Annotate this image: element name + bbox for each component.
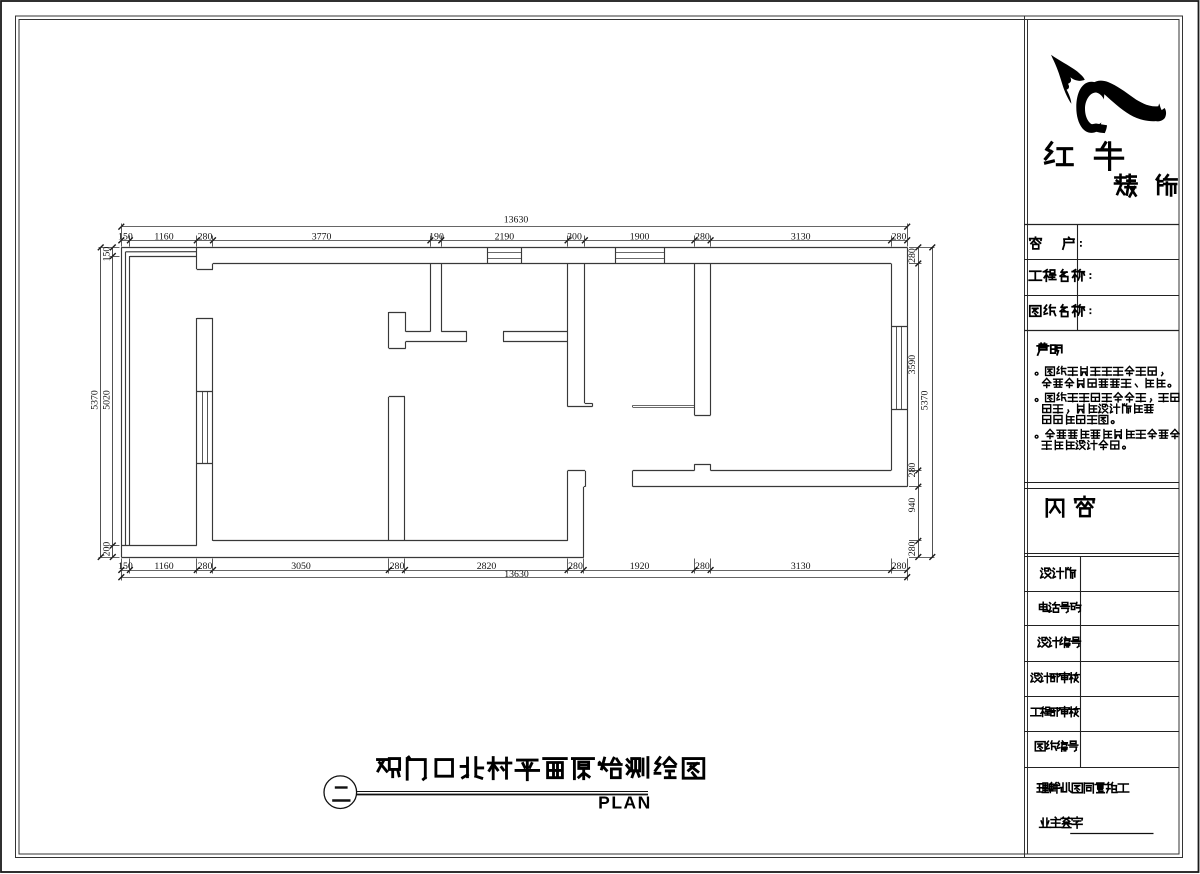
svg-text:1900: 1900 [630,231,650,242]
svg-text:PLAN: PLAN [598,793,652,813]
svg-text:190: 190 [429,231,444,242]
svg-text:150: 150 [118,561,133,572]
svg-text:3050: 3050 [291,561,311,572]
svg-text:280: 280 [892,231,907,242]
svg-text:280: 280 [907,463,918,478]
svg-text:280: 280 [568,561,583,572]
svg-text:3590: 3590 [907,355,918,375]
svg-text:150: 150 [102,247,113,262]
svg-text:300: 300 [567,231,582,242]
svg-text:3130: 3130 [791,561,811,572]
svg-text:5370: 5370 [919,391,930,411]
svg-text:2190: 2190 [495,231,515,242]
svg-text:5370: 5370 [90,390,101,410]
svg-text:280: 280 [907,541,918,556]
svg-text:280: 280 [198,561,213,572]
svg-text:13630: 13630 [504,214,529,225]
svg-text:280: 280 [892,561,907,572]
svg-text:1920: 1920 [630,561,650,572]
svg-text:3130: 3130 [791,231,811,242]
svg-text:1160: 1160 [154,231,173,242]
svg-text:2820: 2820 [477,561,497,572]
svg-text:5020: 5020 [102,390,113,410]
svg-text:280: 280 [695,561,710,572]
svg-text:200: 200 [102,542,113,557]
svg-text:13630: 13630 [504,569,529,580]
svg-text:150: 150 [118,231,133,242]
svg-text:940: 940 [907,498,918,513]
svg-text:280: 280 [907,248,918,263]
svg-text:280: 280 [198,231,213,242]
svg-text:1160: 1160 [154,561,173,572]
svg-text:280: 280 [390,561,405,572]
svg-text:3770: 3770 [312,231,332,242]
svg-text:280: 280 [695,231,710,242]
